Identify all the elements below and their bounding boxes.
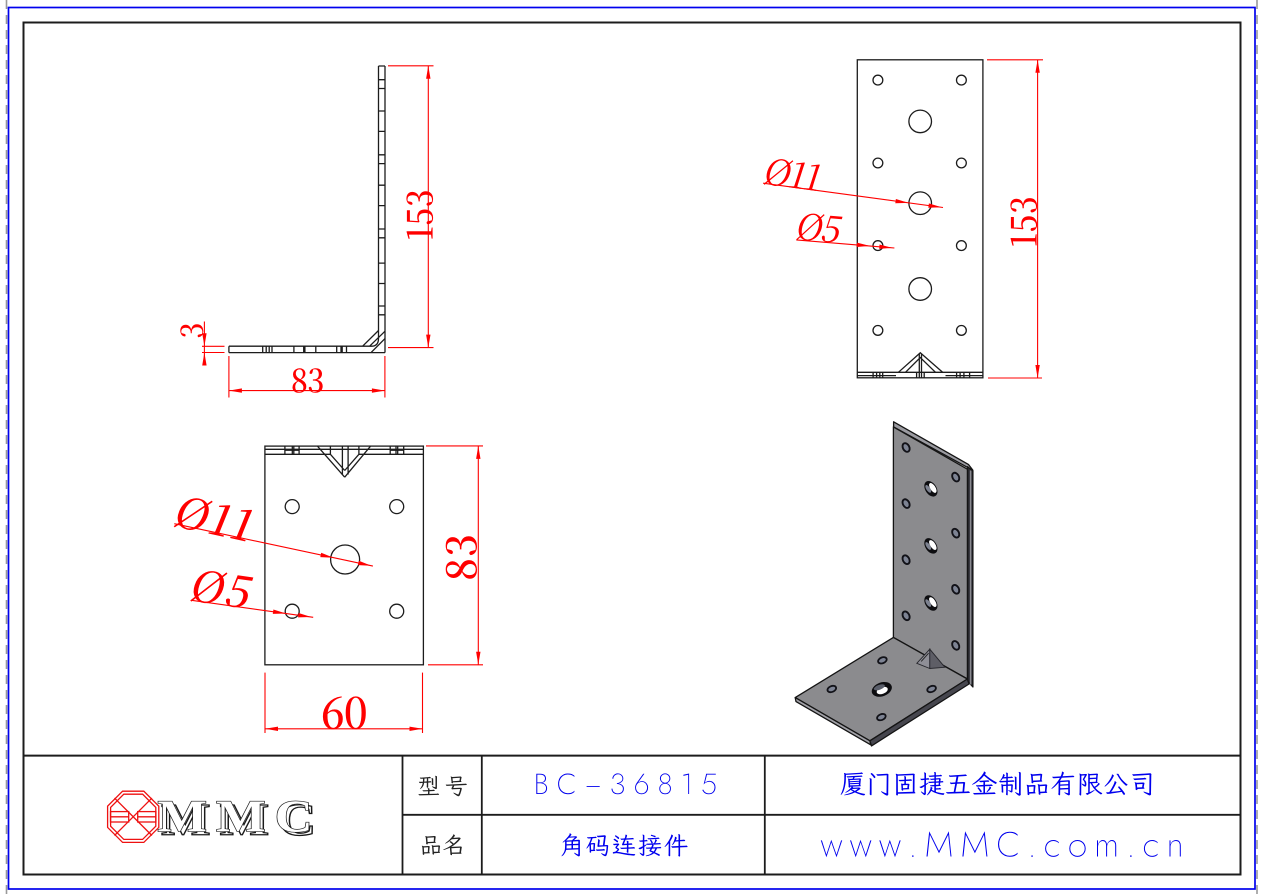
svg-text:MMC: MMC bbox=[158, 790, 322, 841]
